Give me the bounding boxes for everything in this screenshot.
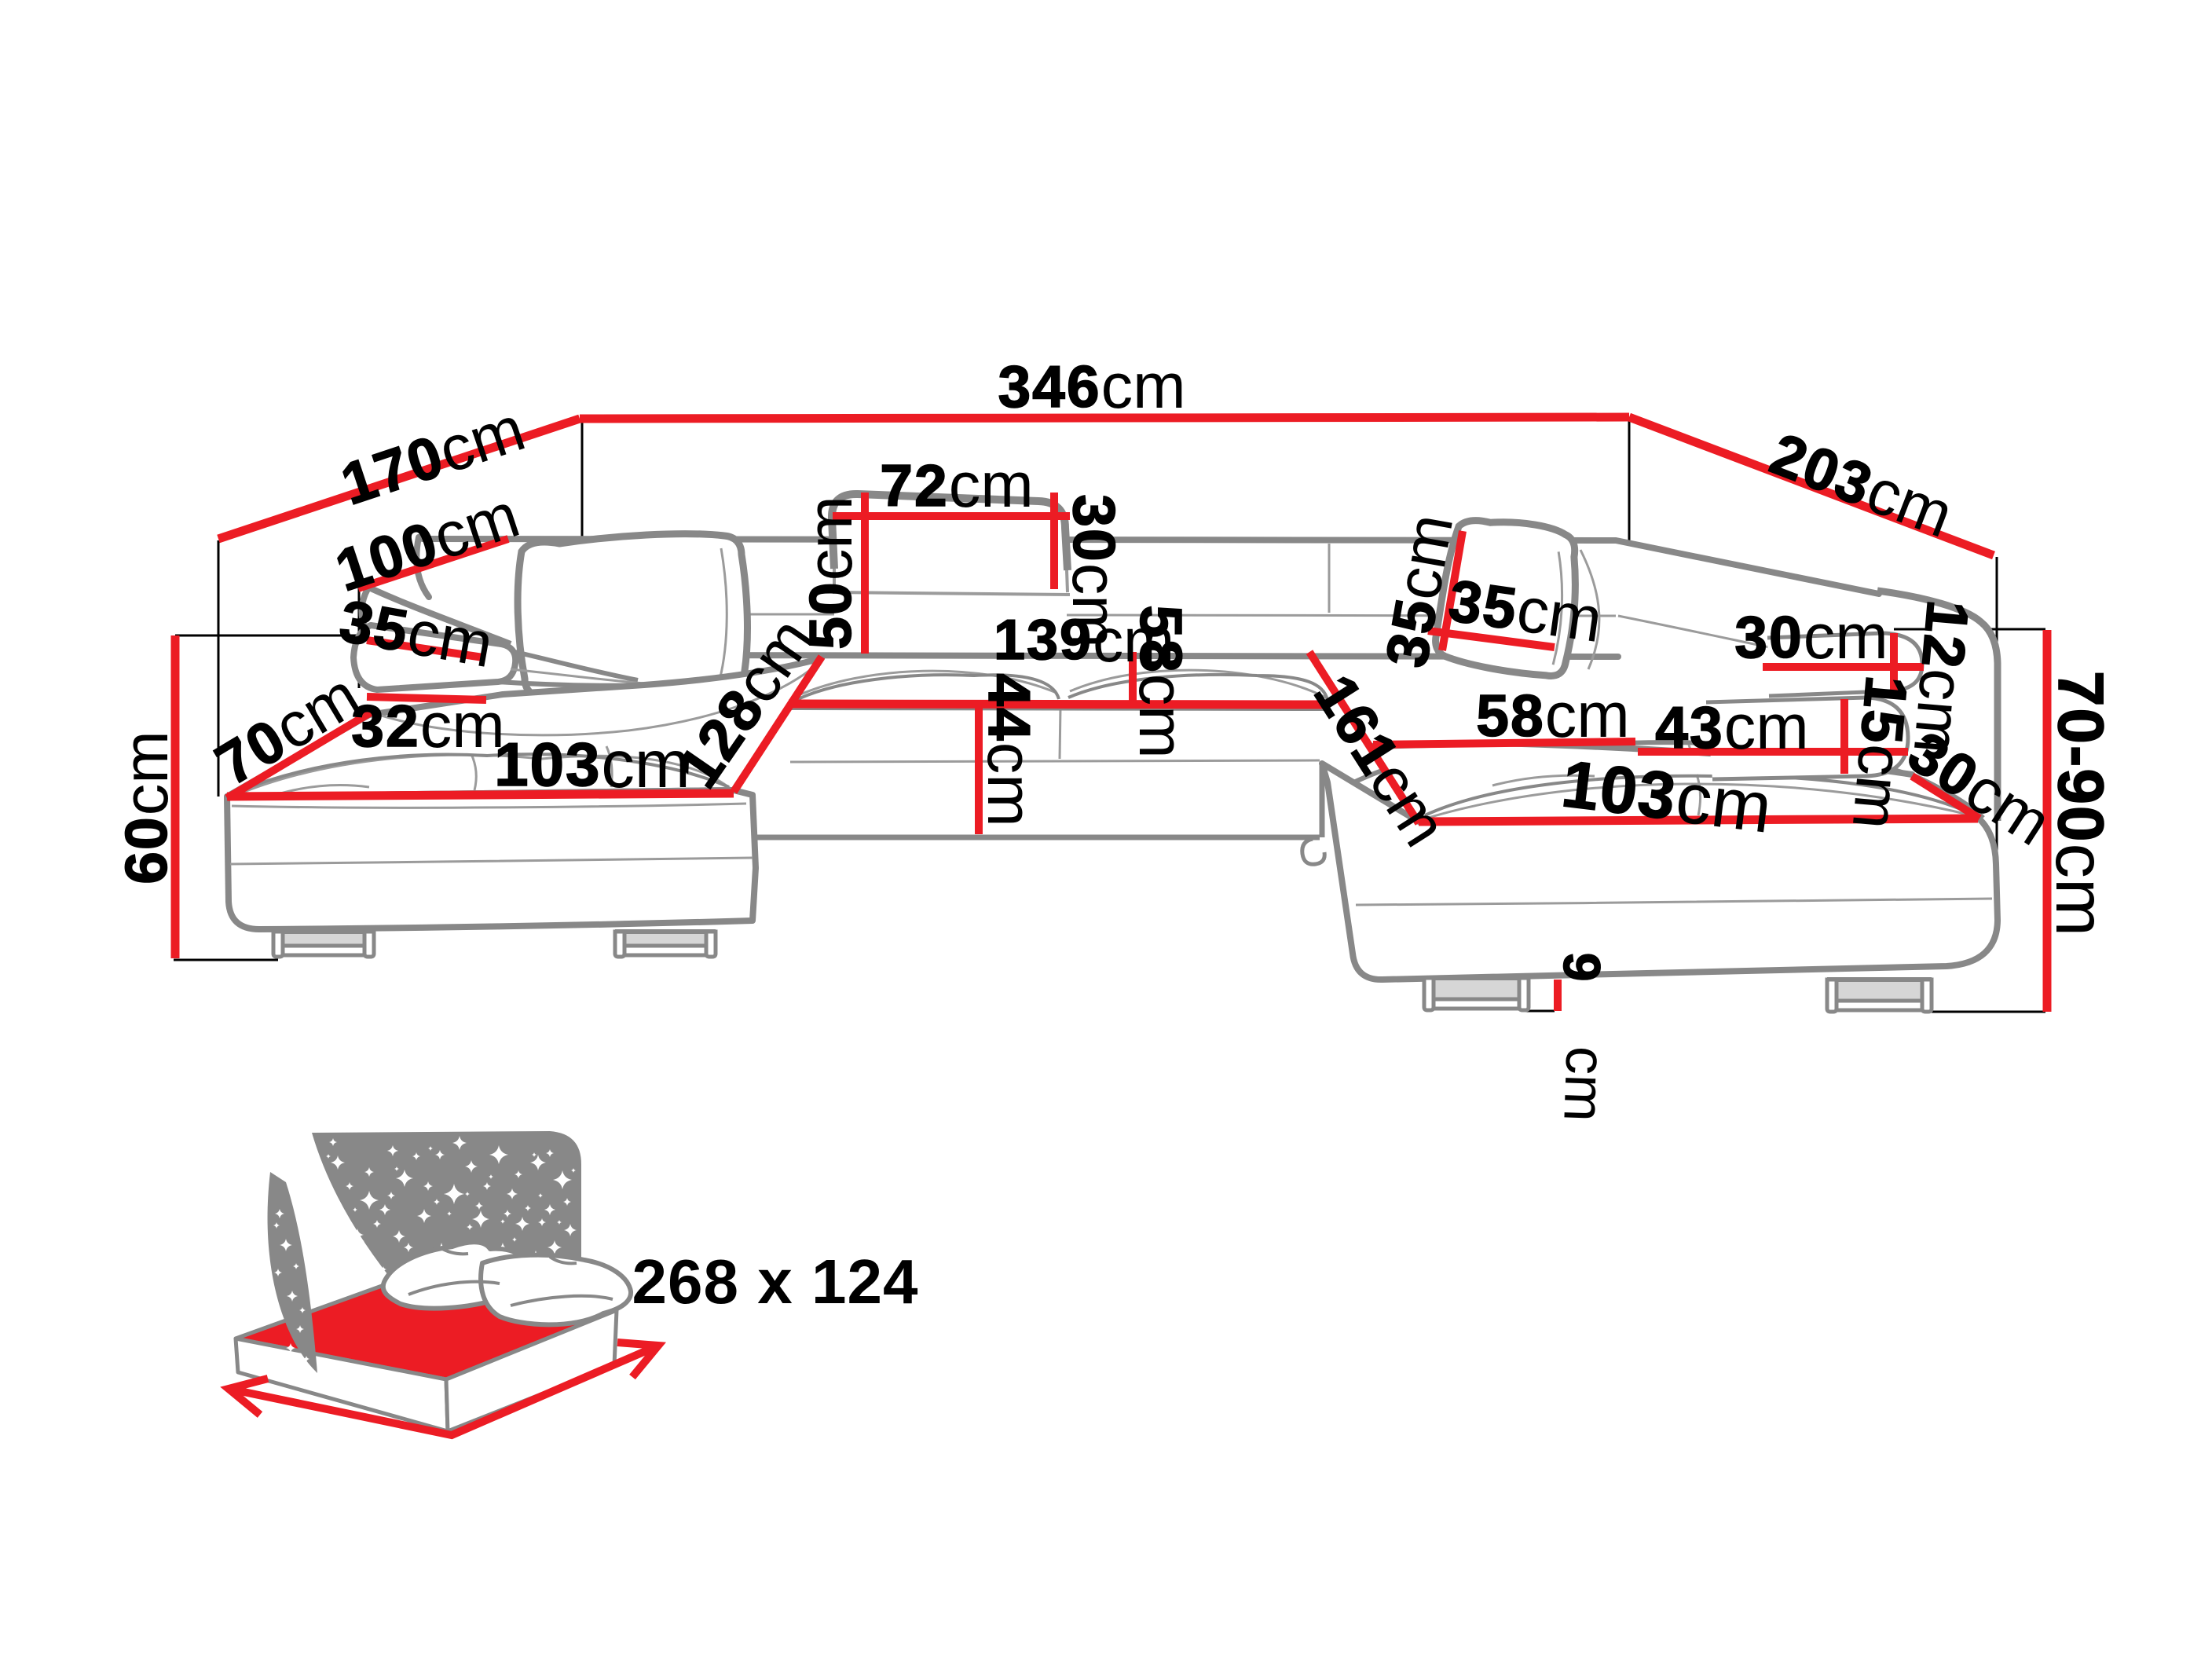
svg-text:32cm: 32cm: [351, 690, 504, 761]
svg-text:268 x 124: 268 x 124: [632, 1247, 919, 1317]
svg-text:44cm: 44cm: [974, 673, 1045, 826]
svg-text:58cm: 58cm: [1126, 605, 1196, 758]
svg-text:30cm: 30cm: [1734, 602, 1888, 672]
svg-text:346cm: 346cm: [998, 351, 1185, 422]
svg-text:58cm: 58cm: [1476, 680, 1629, 751]
svg-text:72cm: 72cm: [880, 450, 1033, 521]
svg-text:43cm: 43cm: [1655, 692, 1808, 763]
svg-text:50cm: 50cm: [795, 496, 866, 649]
svg-text:cm: cm: [1551, 1046, 1617, 1123]
svg-text:103cm: 103cm: [494, 727, 690, 802]
svg-text:70-90cm: 70-90cm: [2042, 671, 2120, 936]
svg-text:60cm: 60cm: [111, 731, 181, 884]
svg-text:9: 9: [1552, 951, 1611, 983]
